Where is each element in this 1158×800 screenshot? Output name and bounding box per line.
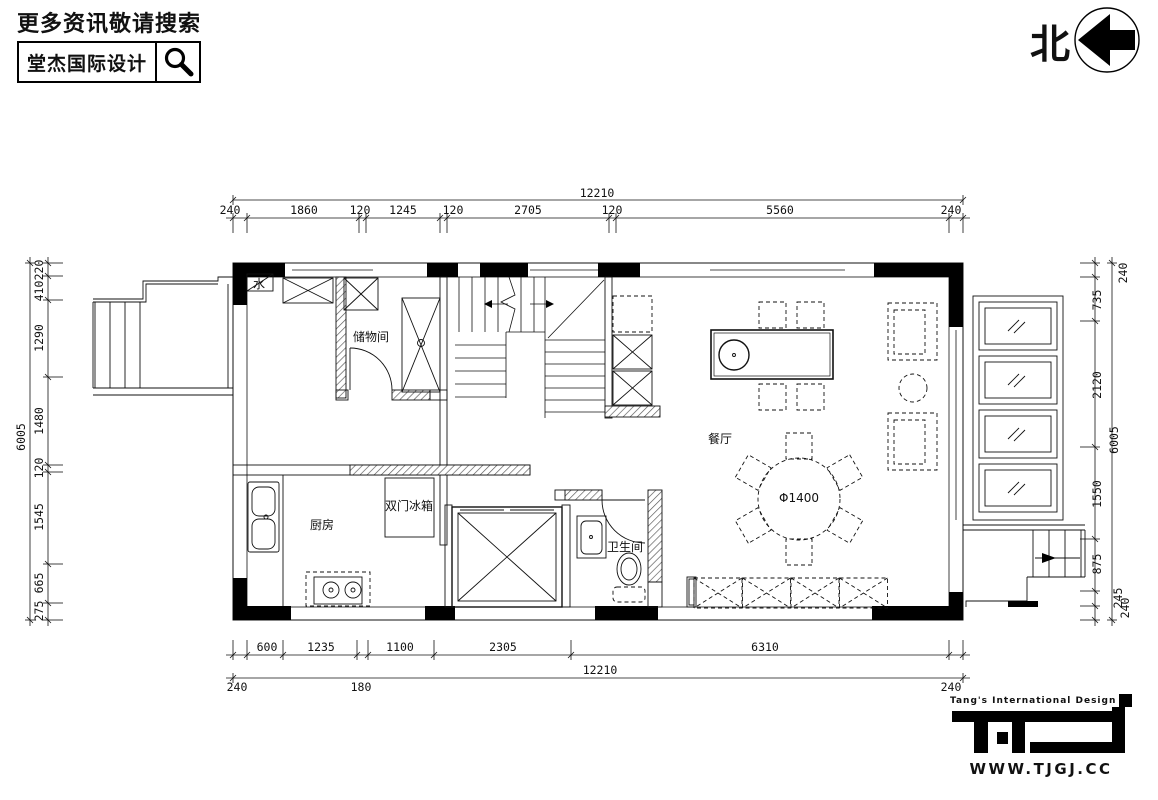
dim-left-6: 665	[32, 573, 46, 594]
dim-top-6: 120	[602, 203, 623, 217]
dim-bot-3: 2305	[489, 640, 517, 654]
dim-top-2: 120	[350, 203, 371, 217]
dim-bot-1: 1235	[307, 640, 335, 654]
floor-plan: 储物间 厨房 卫生间 餐厅 双门冰箱 水 Φ1400 12210 240 186…	[0, 0, 1158, 800]
water-label: 水	[253, 277, 265, 291]
island-counter	[711, 330, 833, 379]
kitchen-sink	[248, 482, 279, 552]
dim-left-5: 1545	[32, 503, 46, 531]
dim-right-2: 2120	[1090, 371, 1104, 399]
dim-bot-overall: 12210	[583, 663, 618, 677]
dim-right-0: 240	[1116, 263, 1130, 284]
dim-left-2: 1290	[32, 324, 46, 352]
walls	[233, 263, 963, 620]
bathroom-door	[602, 500, 645, 543]
dining-label: 餐厅	[708, 431, 732, 446]
left-terrace	[93, 277, 233, 395]
dim-bot-2: 1100	[386, 640, 414, 654]
interior-walls	[233, 277, 662, 607]
storage-door	[350, 348, 392, 390]
dim-left-3: 1480	[32, 407, 46, 435]
dim-top-8: 240	[941, 203, 962, 217]
dim-top-7: 5560	[766, 203, 794, 217]
toilet	[613, 553, 645, 602]
hall-stand	[687, 577, 696, 607]
kitchen-stove	[306, 572, 370, 606]
dim-bot-0: 600	[257, 640, 278, 654]
fridge-label: 双门冰箱	[385, 498, 433, 513]
dim-right-6: 240	[1118, 598, 1132, 619]
dim-top-3: 1245	[389, 203, 417, 217]
dim-right-3: 1550	[1090, 480, 1104, 508]
dim-bot-outer-1: 180	[351, 680, 372, 694]
kitchen-label: 厨房	[310, 517, 334, 532]
dim-bot-4: 6310	[751, 640, 779, 654]
table-diameter-label: Φ1400	[779, 491, 819, 505]
staircase	[455, 277, 605, 418]
dining-cabinet-row	[694, 578, 888, 608]
bathroom-sink	[577, 516, 606, 558]
labels: 储物间 厨房 卫生间 餐厅 双门冰箱 水 Φ1400 12210 240 186…	[14, 186, 1132, 694]
dim-right-overall: 6005	[1107, 426, 1121, 454]
dim-top-0: 240	[220, 203, 241, 217]
dim-right-4: 875	[1090, 554, 1104, 575]
storage-label: 储物间	[353, 329, 389, 344]
entry-steps	[963, 525, 1085, 607]
bay-window	[973, 296, 1063, 520]
hall-cabinets	[613, 296, 652, 405]
dim-top-1: 1860	[290, 203, 318, 217]
dim-top-4: 120	[443, 203, 464, 217]
dim-top-5: 2705	[514, 203, 542, 217]
dim-bot-outer-2: 240	[941, 680, 962, 694]
fixtures	[247, 274, 937, 607]
dim-right-1: 735	[1090, 290, 1104, 311]
dim-top-overall: 12210	[580, 186, 615, 200]
island-chairs	[759, 302, 824, 410]
dim-left-1: 410	[32, 281, 46, 302]
floor-plan-page: 更多资讯敬请搜索 堂杰国际设计 北 Tang's International D…	[0, 0, 1158, 800]
dim-left-0: 220	[32, 260, 46, 281]
bathroom-label: 卫生间	[607, 540, 643, 554]
lounge-chairs	[888, 303, 937, 470]
dim-left-overall: 6005	[14, 423, 28, 451]
dim-bot-outer-0: 240	[227, 680, 248, 694]
dim-left-7: 275	[32, 601, 46, 622]
elevator-shaft	[452, 507, 562, 607]
dim-left-4: 120	[32, 458, 46, 479]
